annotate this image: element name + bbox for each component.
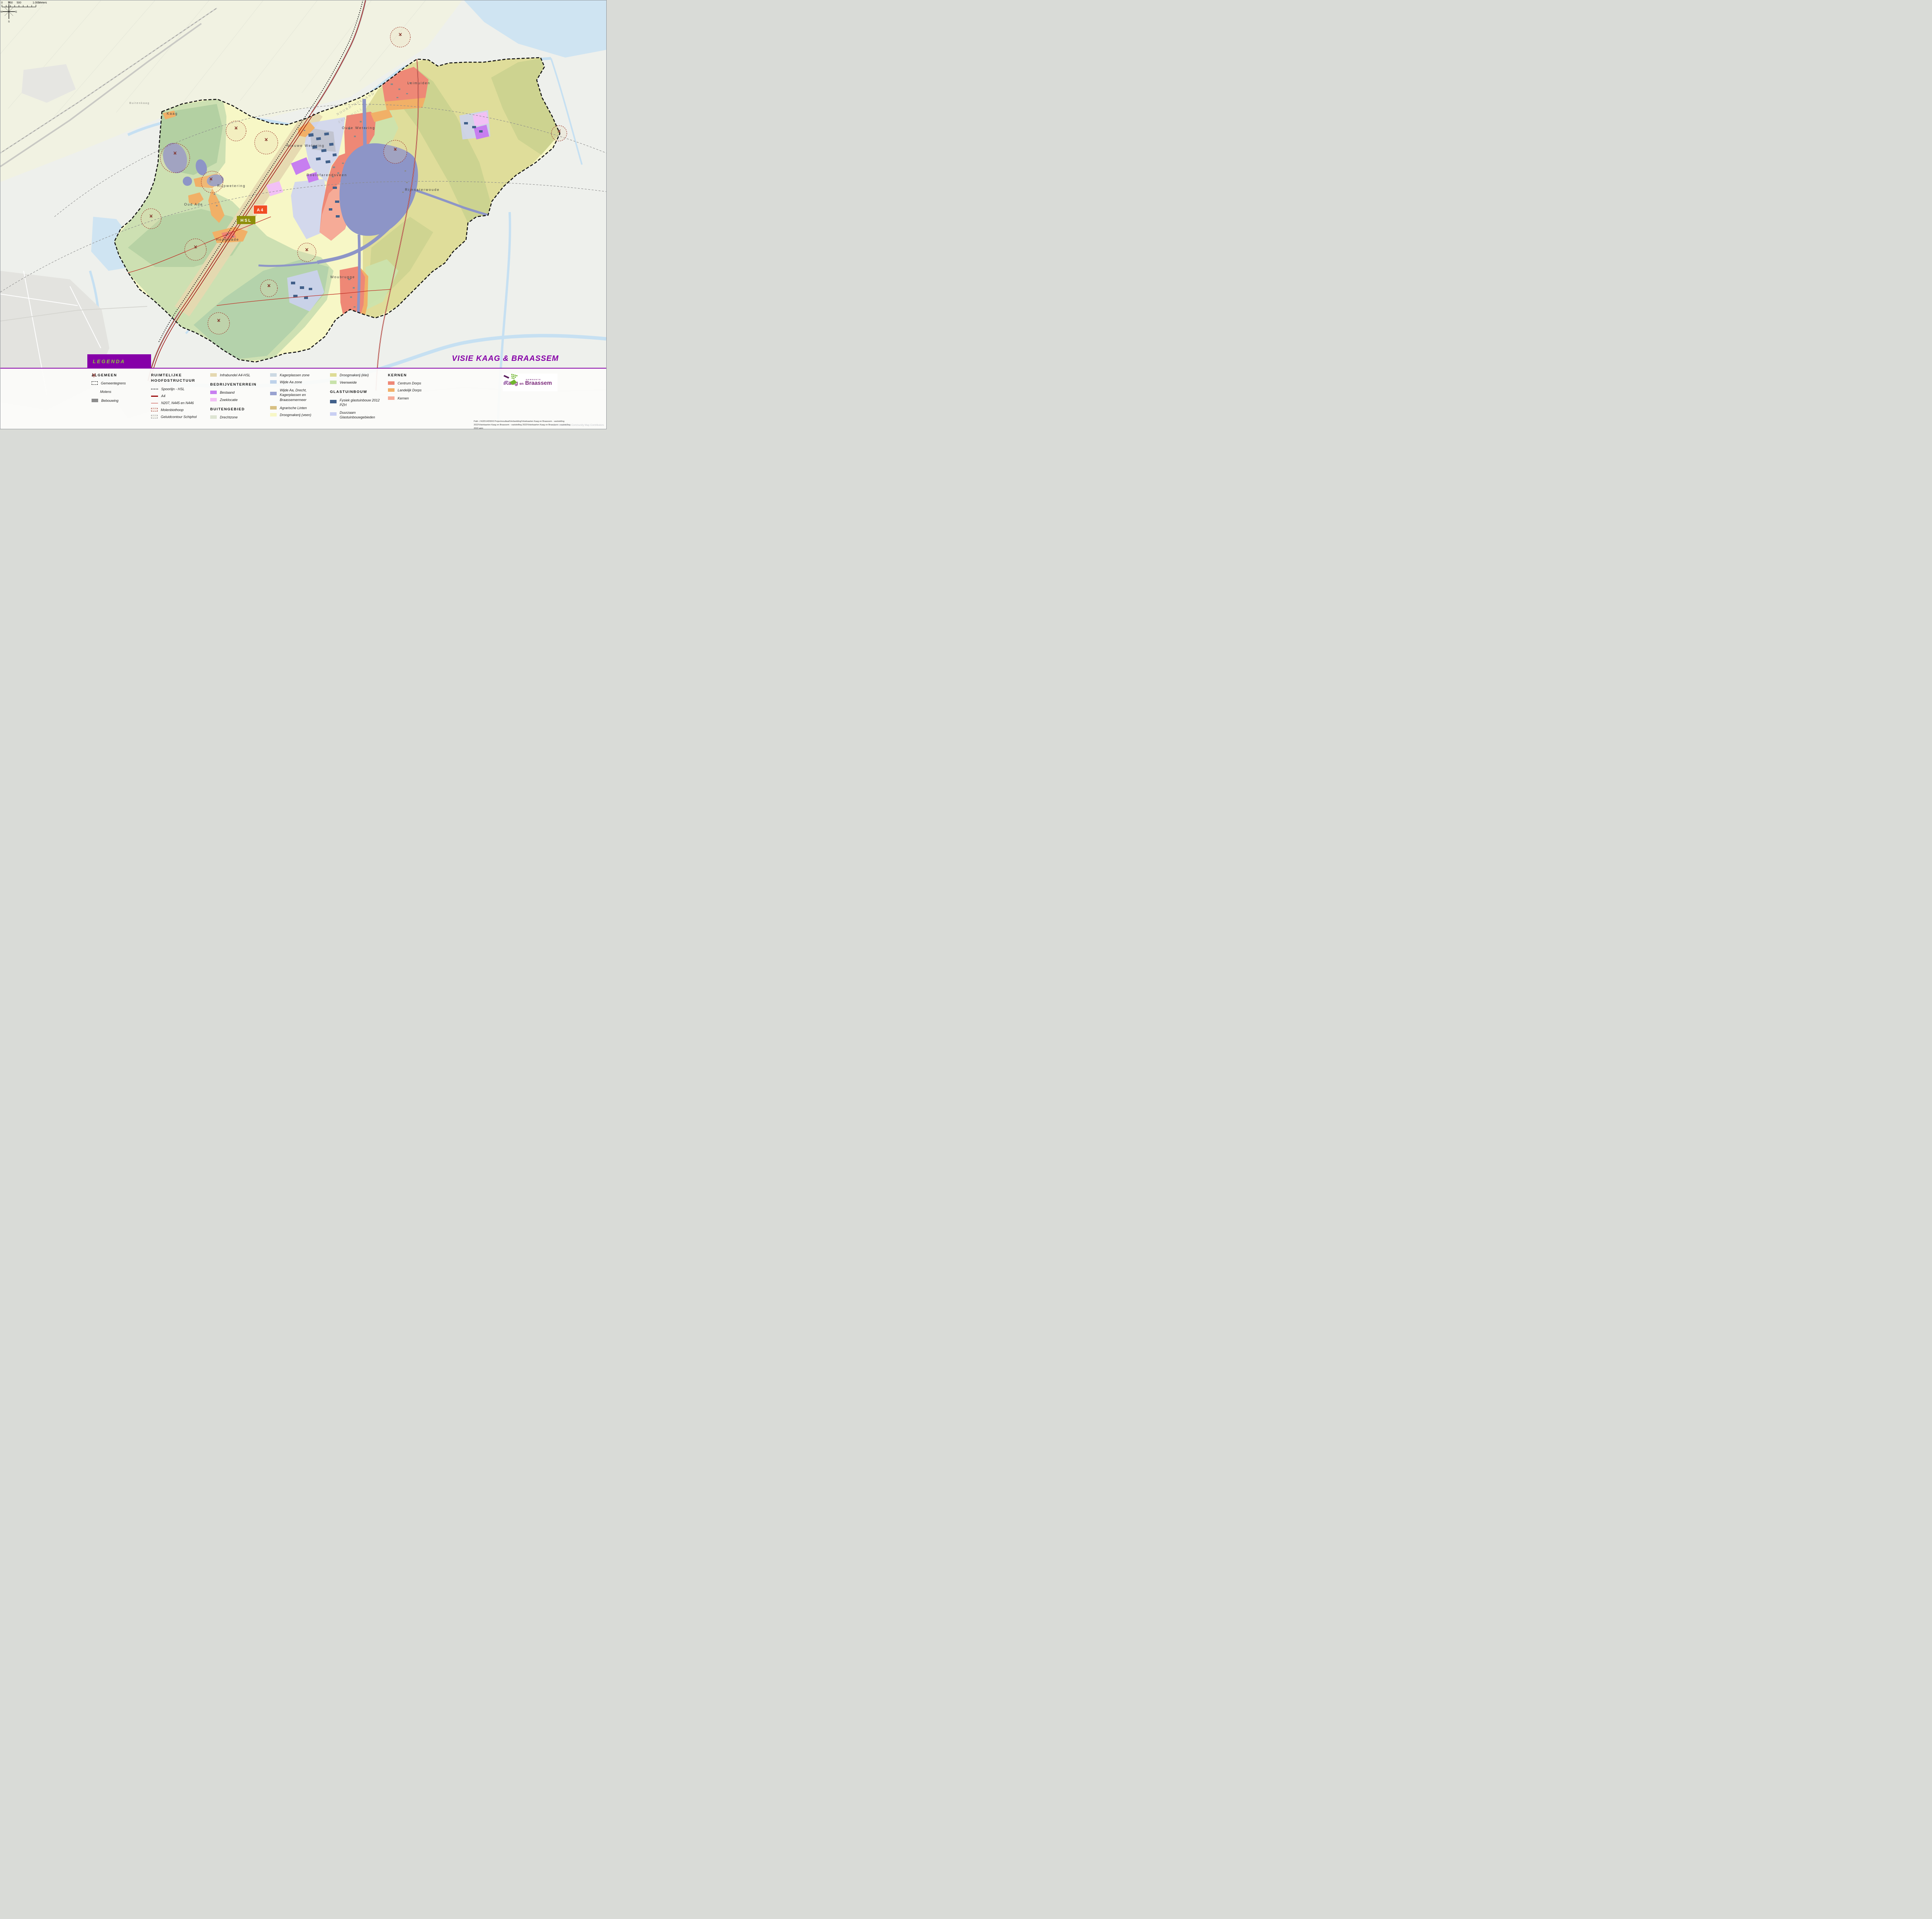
compass-w: W <box>0 11 3 14</box>
nroads-swatch <box>151 403 158 404</box>
landelijk-dorps-swatch <box>388 388 395 392</box>
map-sheet: A4 HSL Kaag Buitenkaag Oud Ade Rijpweter… <box>0 0 607 429</box>
legend-header: GLASTUINBOUW <box>330 389 386 395</box>
label-leimuiden: Leimuiden <box>407 81 430 85</box>
page-title: VISIE KAAG & BRAASSEM <box>452 354 559 363</box>
spoorlijn-swatch <box>151 389 158 389</box>
label-nieuwe-wetering: Nieuwe Wetering <box>287 144 325 148</box>
geluidcontour-swatch <box>151 415 158 418</box>
legend-item-centrum-dorps: Centrum Dorps <box>388 381 445 386</box>
legend-item-bestaand: Bestaand <box>210 390 267 395</box>
compass-n: N <box>8 1 10 4</box>
drechtzone-swatch <box>210 415 217 419</box>
a4-swatch <box>151 396 158 397</box>
label-rijnsaterwoude: Rijnsaterwoude <box>405 188 440 192</box>
hsl-road-badge: HSL <box>237 216 255 224</box>
legend-header: BEDRIJVENTERREIN <box>210 382 267 388</box>
legend-item-wijde-aa-zone: Wijde Aa zone <box>270 380 326 384</box>
label-oude-wetering: Oude Wetering <box>342 126 375 130</box>
kagerplassen-zone-swatch <box>270 373 277 377</box>
legend-item-kagerplassen-zone: Kagerplassen zone <box>270 373 326 377</box>
legend-item-veenweide: Veenweide <box>330 380 386 385</box>
bestaand-swatch <box>210 391 217 394</box>
fysiek-glastuinbouw-swatch <box>330 400 337 403</box>
legend-item-agrarische-linten: Agrarische Linten <box>270 406 326 410</box>
legend-item-drechtzone: Drechtzone <box>210 415 267 420</box>
a4-badge-label: A4 <box>257 208 264 212</box>
legend-col-buitengebied-zones: Kagerplassen zone Wijde Aa zone Wijde Aa… <box>270 373 326 420</box>
label-roelofarendsveen: Roelofarendsveen <box>306 173 347 177</box>
legend-col-hoofdstructuur: RUIMTELIJKE HOOFDSTRUCTUUR Spoorlijn - H… <box>151 373 205 422</box>
legenda-box: LEGENDA <box>87 354 151 369</box>
label-kaag: Kaag <box>167 112 178 116</box>
legend-item-molenbiothoop: Molenbiothoop <box>151 408 205 412</box>
label-rijpwetering: Rijpwetering <box>217 184 246 188</box>
molen-icon <box>92 389 97 394</box>
logo-braassem: Braassem <box>525 380 552 386</box>
compass-rose: N S W E <box>0 0 17 23</box>
scale-unit: Meters <box>39 2 47 4</box>
legend-item-infrabundel: Infrabundel A4-HSL <box>210 373 267 377</box>
infrabundel-swatch <box>210 373 217 377</box>
label-oud-ade: Oud Ade <box>184 202 203 206</box>
veenweide-swatch <box>330 381 337 384</box>
kernen-swatch <box>388 396 395 400</box>
label-woubrugge: Woubrugge <box>330 275 355 279</box>
droogmakerij-veen-swatch <box>270 413 277 416</box>
legend-item-a4: A4 <box>151 394 205 398</box>
legend-item-kernen: Kernen <box>388 396 445 401</box>
wijde-aa-drecht-swatch <box>270 392 277 395</box>
agrarische-linten-swatch <box>270 406 277 410</box>
logo-pinwheel-icon <box>503 374 518 388</box>
legend-item-spoorlijn: Spoorlijn - HSL <box>151 387 205 391</box>
legend-header: RUIMTELIJKE HOOFDSTRUCTUUR <box>151 373 205 384</box>
centrum-dorps-swatch <box>388 381 395 385</box>
a4-road-badge: A4 <box>253 205 267 214</box>
legend-item-droogmakerij-klei: Droogmakerij (klei) <box>330 373 386 377</box>
droogmakerij-klei-swatch <box>330 373 337 377</box>
legend-item-geluidcontour: Geluidcontour Schiphol <box>151 415 205 419</box>
bebouwing-swatch <box>92 399 98 402</box>
gemeente-logo: GEMEENTE Kaag en Braassem <box>503 374 558 391</box>
gemeentegrens-swatch <box>92 381 98 385</box>
logo-en: en <box>520 382 524 386</box>
duurzaam-glastuinbouw-swatch <box>330 412 337 416</box>
label-hoogmade: Hoogmade <box>216 238 239 241</box>
compass-e: E <box>15 11 17 14</box>
legend-item-molens: Molens <box>92 389 149 394</box>
label-buitenkaag: Buitenkaag <box>129 101 150 105</box>
legend-item-zoeklocatie: Zoeklocatie <box>210 398 267 402</box>
compass-s: S <box>8 20 10 23</box>
esri-attribution: Esri Nederland, Community Map Contributo… <box>553 424 604 427</box>
zoeklocatie-swatch <box>210 398 217 401</box>
legend-item-droogmakerij-veen: Droogmakerij (veen) <box>270 413 326 417</box>
legend-col-kernen: KERNEN Centrum Dorps Landelijk Dorps Ker… <box>388 373 445 403</box>
legend-header: KERNEN <box>388 373 445 378</box>
legenda-label: LEGENDA <box>87 359 126 364</box>
legend-item-landelijk-dorps: Landelijk Dorps <box>388 388 445 393</box>
legend-col-algemeen: ALGEMEEN Gemeentegrens Molens Bebouwing <box>92 373 149 406</box>
legend-col-glastuinbouw: Droogmakerij (klei) Veenweide GLASTUINBO… <box>330 373 386 422</box>
legend-item-fysiek: Fysiek glastuinbouw 2012 PZH <box>330 398 386 407</box>
hsl-badge-label: HSL <box>240 218 252 223</box>
legend-header: BUITENGEBIED <box>210 407 267 412</box>
wijde-aa-zone-swatch <box>270 380 277 384</box>
legend-col-bedrijventerrein: Infrabundel A4-HSL BEDRIJVENTERREIN Best… <box>210 373 267 422</box>
legend-item-duurzaam: Duurzaam Glastuinbouwgebieden <box>330 410 386 420</box>
molenbiothoop-swatch <box>151 408 158 411</box>
legend-item-nroads: N207, N445 en N446 <box>151 401 205 405</box>
legend-item-bebouwing: Bebouwing <box>92 398 149 403</box>
legend-item-wijde-aa-drecht: Wijde Aa, Drecht, Kagerplassen en Braass… <box>270 388 326 402</box>
legend-item-gemeentegrens: Gemeentegrens <box>92 381 149 386</box>
legend-header: ALGEMEEN <box>92 373 149 378</box>
